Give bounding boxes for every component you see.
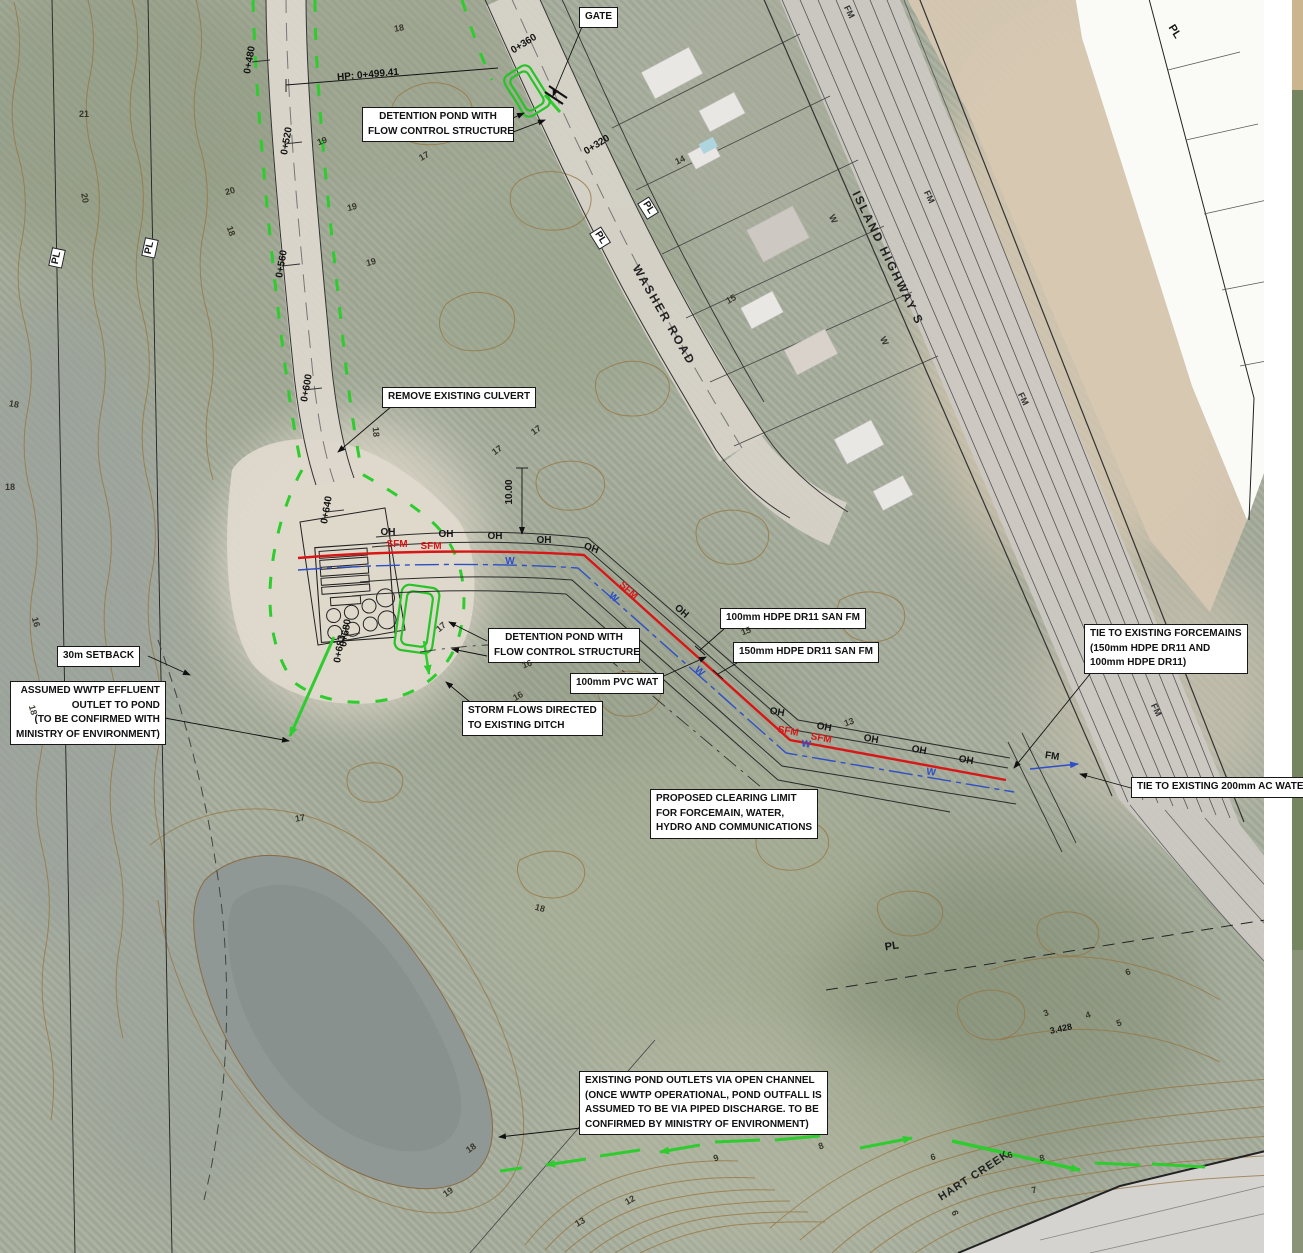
callout-line: (ONCE WWTP OPERATIONAL, POND OUTFALL IS <box>585 1089 822 1104</box>
callout-detention-pond-top: DETENTION POND WITH FLOW CONTROL STRUCTU… <box>362 107 514 142</box>
contour-label: 16 <box>30 616 42 628</box>
oh-label: OH <box>537 535 552 547</box>
road-name-island-highway: ISLAND HIGHWAY S <box>849 189 926 328</box>
contour-label: 6 <box>1124 966 1132 977</box>
watermain-label: W <box>505 556 514 568</box>
watermain-label: W <box>691 664 706 679</box>
contour-label: 18 <box>371 427 382 438</box>
callout-line: DETENTION POND WITH <box>368 110 508 125</box>
callout-fm150: 150mm HDPE DR11 SAN FM <box>733 642 879 663</box>
contour-label: 20 <box>224 185 236 197</box>
callout-line: FOR FORCEMAIN, WATER, <box>656 807 812 822</box>
callout-clearing-limit: PROPOSED CLEARING LIMIT FOR FORCEMAIN, W… <box>650 789 818 839</box>
contour-label: 19 <box>346 201 358 213</box>
contour-label: 20 <box>79 192 91 204</box>
pl-label: PL <box>141 237 159 258</box>
contour-label: 18 <box>225 225 238 238</box>
contour-label: 4 <box>1084 1009 1092 1020</box>
callout-detention-pond-mid: DETENTION POND WITH FLOW CONTROL STRUCTU… <box>488 628 640 663</box>
callout-line: STORM FLOWS DIRECTED <box>468 704 597 719</box>
callout-line: PROPOSED CLEARING LIMIT <box>656 792 812 807</box>
callout-fm100: 100mm HDPE DR11 SAN FM <box>720 608 866 629</box>
forcemain-existing-label: FM <box>921 189 936 205</box>
contour-label: 8 <box>817 1140 825 1151</box>
sanitary-forcemain-label: SFM <box>777 724 800 739</box>
callout-tie-water: TIE TO EXISTING 200mm AC WATER <box>1131 777 1303 798</box>
contour-label: 21 <box>79 109 89 119</box>
oh-label: OH <box>671 603 690 622</box>
forcemain-existing-label: FM <box>1015 391 1030 407</box>
pl-label: PL <box>1165 23 1184 42</box>
contour-label: 6 <box>949 1209 960 1217</box>
station-label: 0+683 <box>332 634 348 664</box>
forcemain-existing-label: FM <box>1148 702 1163 718</box>
callout-line: HYDRO AND COMMUNICATIONS <box>656 821 812 836</box>
watermain-label: W <box>925 766 936 779</box>
contour-label: 19 <box>316 135 329 148</box>
pl-label: PL <box>884 939 900 954</box>
callout-tie-forcemains: TIE TO EXISTING FORCEMAINS (150mm HDPE D… <box>1084 624 1248 674</box>
contour-label: 12 <box>623 1193 637 1207</box>
contour-label: 18 <box>534 902 546 914</box>
station-label-hp: HP: 0+499.41 <box>337 67 400 83</box>
callout-line: ASSUMED WWTP EFFLUENT <box>16 684 160 699</box>
site-plan-map: GATE DETENTION POND WITH FLOW CONTROL ST… <box>0 0 1303 1253</box>
contour-label: 17 <box>417 149 431 163</box>
contour-label: 15 <box>724 292 738 306</box>
callout-line: ASSUMED TO BE VIA PIPED DISCHARGE. TO BE <box>585 1103 822 1118</box>
contour-label: 17 <box>490 443 504 457</box>
forcemain-existing-label: FM <box>841 4 856 20</box>
contour-label: 17 <box>434 620 448 634</box>
callout-line: TIE TO EXISTING FORCEMAINS <box>1090 627 1242 642</box>
callout-line: MINISTRY OF ENVIRONMENT) <box>16 728 160 743</box>
oh-label: OH <box>381 527 396 539</box>
contour-label: 19 <box>365 256 377 268</box>
callout-line: EXISTING POND OUTLETS VIA OPEN CHANNEL <box>585 1074 822 1089</box>
contour-label: 3 <box>1042 1007 1050 1018</box>
sanitary-forcemain-label: SFM <box>420 541 441 553</box>
callout-storm-flows: STORM FLOWS DIRECTED TO EXISTING DITCH <box>462 701 603 736</box>
oh-label: OH <box>863 733 880 747</box>
callout-line: TO EXISTING DITCH <box>468 719 597 734</box>
oh-label: OH <box>911 744 928 758</box>
road-name-washer: WASHER ROAD <box>630 262 699 367</box>
callout-line: CONFIRMED BY MINISTRY OF ENVIRONMENT) <box>585 1118 822 1133</box>
station-label: 0+560 <box>274 249 290 279</box>
station-label: 0+640 <box>319 495 335 525</box>
callout-line: FLOW CONTROL STRUCTURE <box>494 646 634 661</box>
dimension-label: 10.00 <box>504 479 516 504</box>
creek-name-hart: HART CREEK <box>936 1149 1011 1204</box>
callout-line: 100mm HDPE DR11) <box>1090 656 1242 671</box>
contour-label: 9 <box>712 1152 720 1163</box>
contour-label: 6 <box>929 1152 936 1163</box>
sanitary-forcemain-label: SFM <box>616 579 640 602</box>
callout-gate: GATE <box>579 7 618 28</box>
pl-label: PL <box>637 196 659 219</box>
spot-elevation-label: 3.428 <box>1049 1021 1073 1036</box>
callout-pvc-water: 100mm PVC WAT <box>570 673 664 694</box>
contour-label: 19 <box>441 1185 455 1199</box>
contour-label: 7 <box>1030 1185 1037 1196</box>
sanitary-forcemain-label: SFM <box>386 539 407 551</box>
contour-label: 17 <box>294 812 306 824</box>
station-label: 0+480 <box>242 45 258 75</box>
contour-label: 18 <box>464 1141 478 1155</box>
callout-remove-culvert: REMOVE EXISTING CULVERT <box>382 387 536 408</box>
callout-pond-outlets: EXISTING POND OUTLETS VIA OPEN CHANNEL (… <box>579 1071 828 1135</box>
station-label: 0+600 <box>299 373 315 403</box>
callout-line: (150mm HDPE DR11 AND <box>1090 642 1242 657</box>
callout-line: FLOW CONTROL STRUCTURE <box>368 125 508 140</box>
contour-label: 14 <box>673 153 686 166</box>
pl-label: PL <box>48 247 66 268</box>
contour-label: 18 <box>393 22 405 34</box>
contour-label: 18 <box>5 482 15 492</box>
labels-layer: GATE DETENTION POND WITH FLOW CONTROL ST… <box>0 0 1303 1253</box>
callout-line: DETENTION POND WITH <box>494 631 634 646</box>
callout-line: (TO BE CONFIRMED WITH <box>16 713 160 728</box>
station-label: 0+320 <box>582 133 612 157</box>
oh-label: OH <box>439 529 454 541</box>
contour-label: 17 <box>529 423 543 437</box>
oh-label: OH <box>582 541 600 557</box>
contour-label: 5 <box>1115 1017 1123 1028</box>
forcemain-tie-label: FM <box>1044 750 1060 764</box>
sanitary-forcemain-label: SFM <box>810 731 833 746</box>
oh-label: OH <box>958 754 975 768</box>
callout-setback: 30m SETBACK <box>57 646 140 667</box>
oh-label: OH <box>488 531 503 543</box>
contour-label: 18 <box>8 398 20 410</box>
watermain-label: W <box>605 590 620 605</box>
contour-label: 13 <box>573 1215 587 1229</box>
station-label: 0+520 <box>279 126 295 156</box>
oh-label: OH <box>769 706 786 720</box>
station-label: 0+360 <box>509 32 539 56</box>
contour-label: 8 <box>1038 1153 1045 1164</box>
contour-label: 13 <box>843 716 856 729</box>
watermain-label: W <box>826 213 839 225</box>
watermain-label: W <box>877 335 890 347</box>
pl-label: PL <box>589 226 611 249</box>
